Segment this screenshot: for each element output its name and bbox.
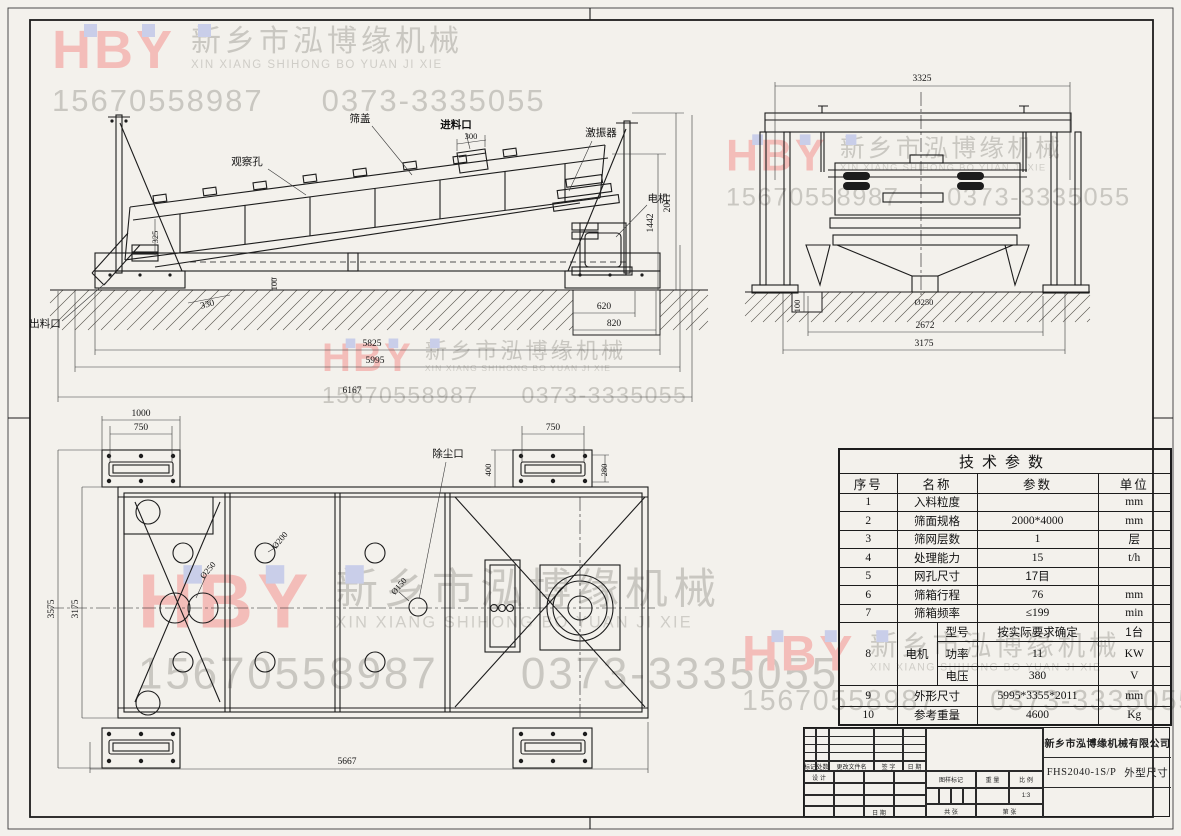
table-cell: 4 [839,548,897,567]
table-row: 7筛箱频率≤199min [839,604,1171,622]
table-cell: 8 [839,622,897,685]
dim-dia250: Ø250 [198,560,218,581]
table-row: 9外形尺寸5995*3355*2011mm [839,685,1171,706]
dim-325: 325 [150,231,160,244]
scale-label: 比 例 [1009,771,1043,788]
table-cell: 380 [977,666,1098,685]
table-cell [1098,567,1171,585]
table-cell: 筛箱行程 [897,585,977,604]
table-cell: 功率 [937,641,977,666]
scale-value: 1:3 [1009,788,1043,804]
dim-820: 820 [607,319,622,329]
table-cell: 9 [839,685,897,706]
dim-100: 100 [792,300,802,313]
table-cell: 15 [977,548,1098,567]
col-header: 名称 [897,473,977,493]
sheets-label: 共 张 [926,804,976,818]
dim-300: 300 [465,131,478,141]
rev-label: 日 期 [903,761,926,771]
table-cell: 网孔尺寸 [897,567,977,585]
end-view-drawing: 3325 Ø250 100 2672 3175 [740,60,1125,360]
table-row: 5网孔尺寸17目 [839,567,1171,585]
table-cell: 7 [839,604,897,622]
dim-280: 280 [599,464,609,477]
table-cell: 处理能力 [897,548,977,567]
dim-400: 400 [483,464,493,477]
dim-2672: 2672 [916,321,935,331]
dim-dia150: Ø150 [389,576,409,597]
mark-label: 图样标记 [926,771,976,788]
table-cell: 参考重量 [897,706,977,725]
design-label: 设 计 [804,771,834,783]
dim-750-right: 750 [546,423,561,433]
machine-structure [102,450,648,768]
plan-view-drawing: 1000 750 750 400 280 除尘口 Ø250 Ø200 Ø150 … [35,402,680,782]
dim-6167: 6167 [343,386,362,396]
table-row: 3筛网层数1层 [839,530,1171,548]
table-row: 2筛面规格2000*4000mm [839,511,1171,530]
table-cell: mm [1098,493,1171,511]
table-cell: mm [1098,585,1171,604]
table-cell: 外形尺寸 [897,685,977,706]
drawing-title-text: 外型尺寸 [1124,765,1168,780]
dim-5667: 5667 [338,757,357,767]
table-cell: Kg [1098,706,1171,725]
dim-2011: 2011 [663,193,673,212]
dim-750-left: 750 [134,423,149,433]
table-cell: 4600 [977,706,1098,725]
dim-dia250: Ø250 [915,297,934,307]
label-screen-cover: 筛盖 [350,112,371,125]
table-cell: KW [1098,641,1171,666]
dimension-lines [58,416,648,773]
dim-5825: 5825 [363,339,382,349]
label-dust-port: 除尘口 [432,447,464,460]
table-cell: 6 [839,585,897,604]
table-cell: 1 [977,530,1098,548]
machine-structure [745,106,1090,293]
dim-3175: 3175 [71,599,81,618]
table-cell: 型号 [937,622,977,641]
table-cell: 筛箱频率 [897,604,977,622]
rev-label: 处数 [816,761,829,771]
dim-1000: 1000 [132,409,151,419]
label-discharge-outlet: 出料口 [29,317,61,330]
table-cell: ≤199 [977,604,1098,622]
table-cell: V [1098,666,1171,685]
title-block: 标记 处数 更改文件名 签 字 日 期 设 计 日 期 图样标记 重 量 比 例… [803,727,1170,817]
col-header: 序号 [839,473,897,493]
table-cell-motor: 电机 [897,622,937,685]
table-cell: 电压 [937,666,977,685]
table-cell: 筛面规格 [897,511,977,530]
table-cell: 层 [1098,530,1171,548]
col-header: 参数 [977,473,1098,493]
table-cell: mm [1098,685,1171,706]
center-lines [50,497,655,717]
table-cell: 筛网层数 [897,530,977,548]
dim-1442: 1442 [646,213,656,232]
machine-structure [50,115,708,290]
table-cell: 1台 [1098,622,1171,641]
table-cell [977,493,1098,511]
table-cell: t/h [1098,548,1171,567]
table-cell: 11 [977,641,1098,666]
table-cell: 2000*4000 [977,511,1098,530]
label-observation-hole: 观察孔 [231,155,263,168]
table-cell: 按实际要求确定 [977,622,1098,641]
table-cell: mm [1098,511,1171,530]
rev-label: 签 字 [874,761,903,771]
dim-3175: 3175 [915,339,934,349]
table-row: 1入料粒度mm [839,493,1171,511]
plan-view-texts: 1000 750 750 400 280 除尘口 Ø250 Ø200 Ø150 … [47,409,609,767]
table-cell: 5995*3355*2011 [977,685,1098,706]
dim-3325: 3325 [913,74,932,84]
rev-label: 标记 [804,761,816,771]
table-row: 10参考重量4600Kg [839,706,1171,725]
table-title: 技术参数 [839,449,1171,473]
table-cell: 2 [839,511,897,530]
rev-label: 更改文件名 [829,761,874,771]
dim-dia200: Ø200 [270,530,290,551]
dim-3575: 3575 [47,599,57,618]
table-cell: 10 [839,706,897,725]
table-cell: 17目 [977,567,1098,585]
drawing-no-text: FHS2040-1S/P [1047,767,1117,778]
label-feed-inlet: 进料口 [440,118,472,131]
label-exciter: 激振器 [585,126,617,139]
sheet-no-label: 第 张 [976,804,1043,818]
table-row: 6筛箱行程76mm [839,585,1171,604]
dim-5995: 5995 [366,356,385,366]
table-cell: min [1098,604,1171,622]
date-label: 日 期 [864,806,894,818]
dim-620: 620 [597,302,612,312]
weight-label: 重 量 [976,771,1009,788]
table-cell: 3 [839,530,897,548]
tech-params-table: 技术参数 序号 名称 参数 单位 1入料粒度mm 2筛面规格2000*4000m… [838,448,1172,726]
side-view-drawing: 观察孔 筛盖 进料口 激振器 电机 出料口 300 325 100 330 14… [20,95,730,405]
dim-100: 100 [269,278,279,291]
table-row: 8 电机 型号 按实际要求确定 1台 [839,622,1171,641]
table-row: 4处理能力15t/h [839,548,1171,567]
col-header: 单位 [1098,473,1171,493]
drawing-number: FHS2040-1S/P 外型尺寸 [1043,758,1171,788]
table-cell: 入料粒度 [897,493,977,511]
table-cell: 76 [977,585,1098,604]
table-cell: 5 [839,567,897,585]
company-name: 新乡市泓博缘机械有限公司 [1043,728,1171,758]
table-cell: 1 [839,493,897,511]
